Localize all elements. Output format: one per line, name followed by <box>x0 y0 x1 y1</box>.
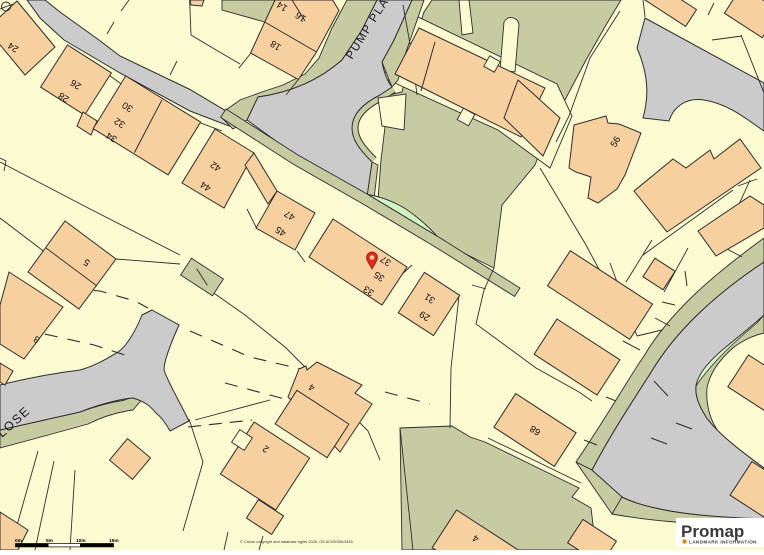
svg-text:5m: 5m <box>46 538 53 544</box>
svg-text:15m: 15m <box>109 538 119 544</box>
svg-text:Promap: Promap <box>681 522 744 541</box>
svg-text:0m: 0m <box>15 538 22 544</box>
svg-text:© Crown copyright and database: © Crown copyright and database rights 20… <box>240 539 353 544</box>
svg-text:LANDMARK INFORMATION: LANDMARK INFORMATION <box>689 540 757 545</box>
svg-text:10m: 10m <box>76 538 86 544</box>
